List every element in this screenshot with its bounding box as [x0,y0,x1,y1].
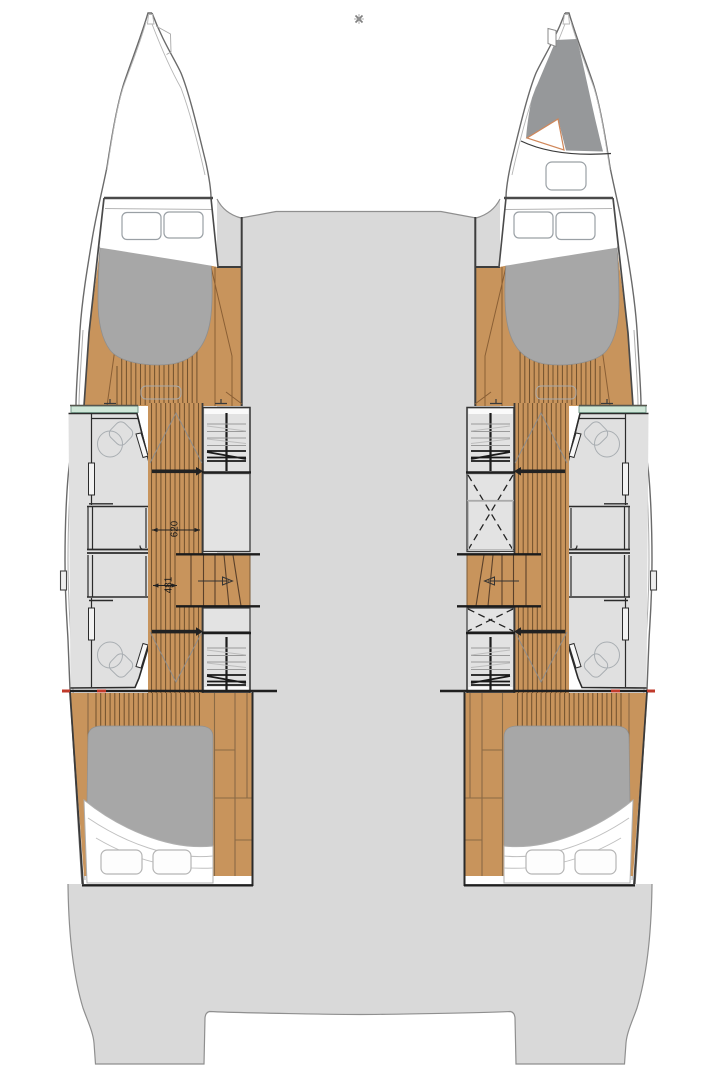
svg-text:481: 481 [163,577,174,593]
svg-text:620: 620 [169,520,180,537]
